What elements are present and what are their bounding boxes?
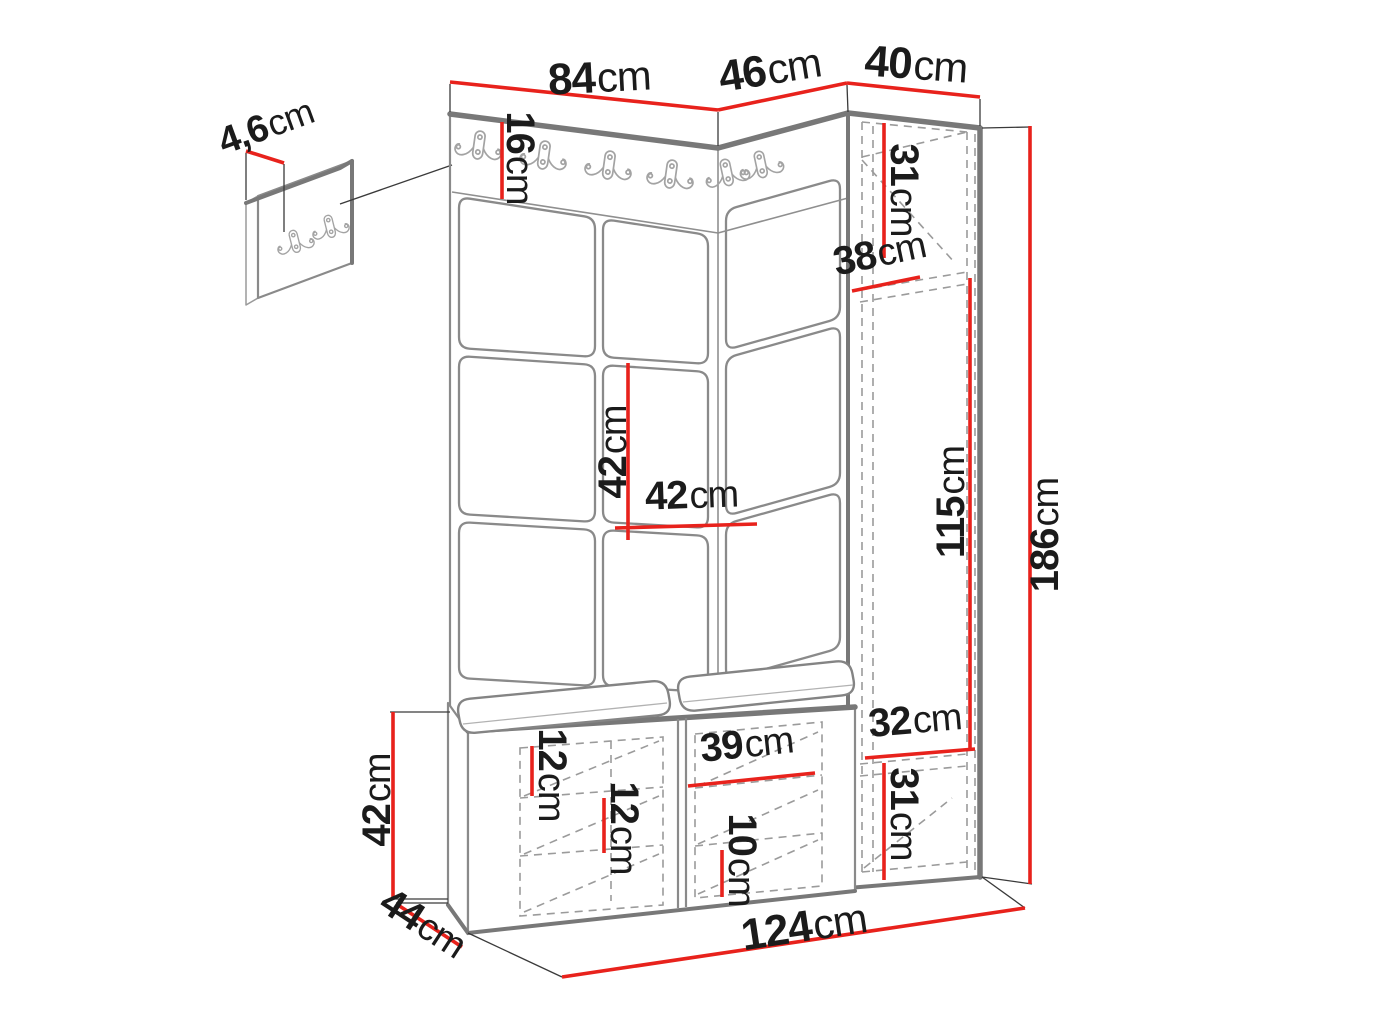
upholstered-tile (459, 523, 595, 686)
svg-text:42cm: 42cm (355, 753, 399, 846)
cabinet-bottom-edge (848, 877, 980, 888)
dim-corner-panel-width: 46cm (715, 37, 848, 112)
svg-text:4,6cm: 4,6cm (213, 90, 319, 163)
upholstered-tile (726, 328, 840, 513)
hook-plate-detail (246, 161, 452, 305)
svg-text:31cm: 31cm (882, 767, 926, 860)
svg-text:115cm: 115cm (929, 446, 973, 558)
bench-unit (448, 661, 855, 933)
bench-side-face (448, 703, 468, 933)
svg-text:42cm: 42cm (591, 405, 635, 498)
svg-text:12cm: 12cm (602, 781, 646, 874)
dim-bench-height: 42cm (355, 712, 450, 899)
svg-text:31cm: 31cm (882, 143, 926, 236)
upholstered-tile (603, 531, 708, 692)
dim-total-height: 186cm (982, 126, 1067, 884)
svg-text:12cm: 12cm (530, 728, 574, 821)
svg-text:10cm: 10cm (720, 813, 764, 906)
dim-bench-shelf-spacing-10: 10cm (720, 813, 764, 906)
svg-text:42cm: 42cm (644, 471, 739, 518)
dim-hook-rail-height: 16cm (498, 111, 542, 204)
dim-bench-shelf-spacing-12b: 12cm (602, 781, 646, 874)
upholstered-tile (726, 494, 840, 677)
upholstered-tile (603, 220, 708, 363)
diagram-canvas: 84cm 46cm 40cm 4,6cm 16cm 31cm (0, 0, 1381, 1036)
corner-top-edge (718, 113, 848, 148)
cabinet-top-edge (848, 113, 980, 128)
furniture-dimension-diagram: 84cm 46cm 40cm 4,6cm 16cm 31cm (0, 0, 1381, 1036)
svg-text:186cm: 186cm (1023, 478, 1067, 592)
double-hook-icon (584, 148, 634, 182)
upholstered-tiles (459, 180, 840, 691)
hook-plate-side-face (246, 196, 258, 305)
double-hook-icon (737, 147, 786, 182)
panel-top-edge (450, 114, 718, 148)
dim-cabinet-bottom-shelf-width: 32cm (865, 694, 975, 758)
svg-text:16cm: 16cm (498, 111, 542, 204)
leader-line (340, 165, 452, 204)
upholstered-tile (459, 357, 595, 522)
svg-text:38cm: 38cm (829, 222, 929, 284)
upholstered-tile (459, 198, 595, 356)
double-hook-icon (646, 157, 696, 191)
dim-cabinet-shelf-depth: 38cm (829, 222, 929, 291)
svg-text:40cm: 40cm (863, 37, 969, 93)
dim-bench-shelf-spacing-12a: 12cm (530, 728, 574, 821)
svg-text:84cm: 84cm (547, 50, 652, 104)
dim-cabinet-bottom-compartment-height: 31cm (882, 763, 926, 880)
double-hook-icon (703, 155, 752, 190)
double-hook-icon (454, 128, 504, 162)
svg-text:32cm: 32cm (867, 694, 964, 746)
